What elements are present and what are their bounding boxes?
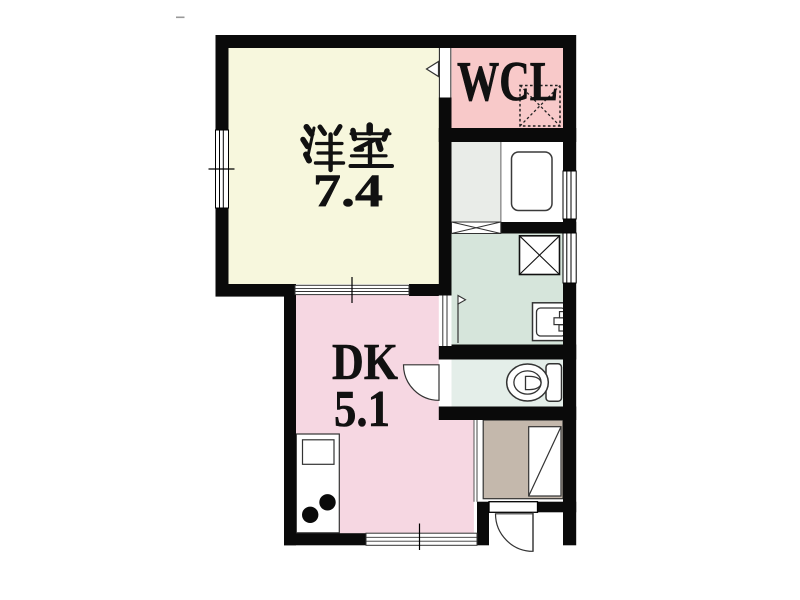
svg-text:7.4: 7.4: [313, 165, 383, 217]
svg-text:5.1: 5.1: [334, 381, 390, 438]
svg-text:WCL: WCL: [457, 51, 558, 113]
